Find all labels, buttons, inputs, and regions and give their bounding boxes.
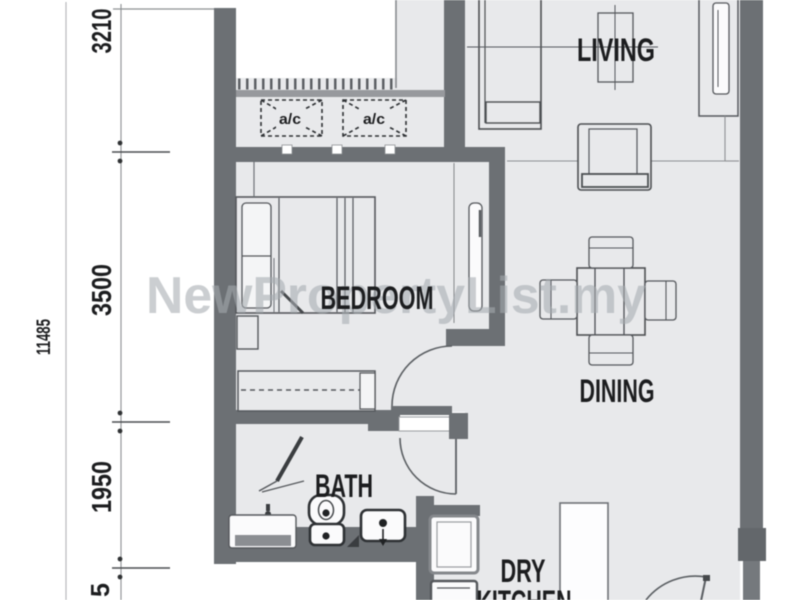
svg-text:DINING: DINING [580, 373, 655, 409]
svg-text:3500: 3500 [86, 264, 117, 316]
svg-text:a/c: a/c [363, 111, 385, 128]
svg-text:BATH: BATH [315, 468, 373, 504]
svg-text:BEDROOM: BEDROOM [321, 280, 434, 316]
svg-text:LIVING: LIVING [577, 32, 655, 68]
svg-text:3210: 3210 [86, 9, 117, 54]
svg-text:11485: 11485 [34, 319, 55, 355]
svg-text:1950: 1950 [86, 461, 117, 513]
svg-text:5: 5 [85, 583, 115, 597]
svg-text:a/c: a/c [279, 111, 301, 128]
svg-text:KITCHEN: KITCHEN [477, 584, 572, 600]
